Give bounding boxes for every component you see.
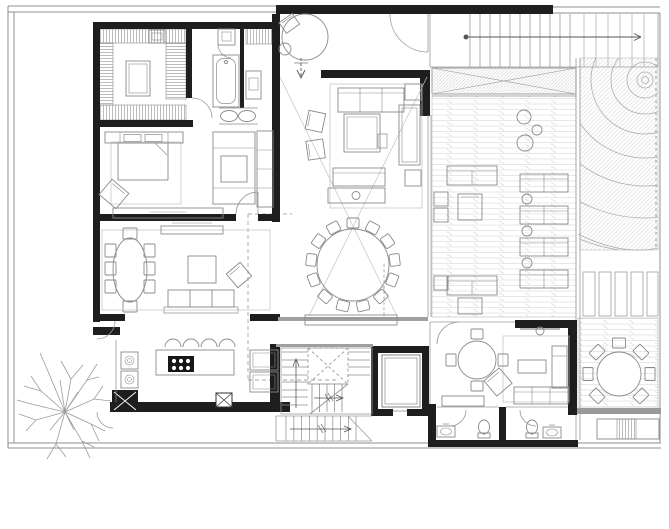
headboard [105,132,183,143]
armchair [305,110,326,132]
terrace-step-edge [576,408,661,414]
powder-room-2-door [520,410,536,426]
service-door [97,412,113,428]
flight-treads-right [348,352,370,375]
chaise-sofa [213,132,255,204]
kitchen [116,339,278,402]
coffee-table [344,114,380,152]
rug [111,142,181,204]
entry-arrow [294,58,308,78]
outdoor-round-table [597,352,641,396]
paver [647,272,658,316]
exterior-stair-diagonal [348,416,372,441]
boundary-top [8,6,278,12]
toilet [479,420,490,434]
coffee-table [518,360,546,373]
bath-louver-screen [246,28,272,44]
entry-door [390,14,428,52]
paver [615,272,627,316]
coffee-table [188,256,216,283]
side-stool [378,134,387,148]
console [442,396,484,406]
double-height-void-cross [280,77,427,316]
elevator [382,355,420,411]
exterior-lower-stair [276,416,372,441]
master-bedroom [99,132,223,218]
wall-oven [121,371,138,388]
chaise [552,346,567,388]
pillow [145,135,162,142]
tv-mount [536,327,544,335]
bar-stools [165,339,235,347]
closet-band-left [99,43,113,105]
study-lounge [213,131,273,207]
sink [543,427,561,438]
round-table [458,341,496,379]
dining-chairs [306,218,401,312]
paver [583,272,595,316]
main-staircase [281,348,372,414]
lamp [352,192,360,200]
ottoman [221,156,247,182]
closet-band-top [99,29,186,43]
shower-door [218,45,231,58]
sink-basin [221,111,238,122]
setback-lines [248,214,336,380]
planter-fill [617,419,636,439]
closet-band-bottom [99,105,186,120]
deck-floor [432,96,576,317]
ramp-band [432,68,576,94]
family-room [442,327,569,406]
stair-treads [470,14,570,67]
double-height-living-room [305,84,422,208]
armchair [484,368,512,396]
sofa [168,290,234,307]
closet-band-right [166,43,186,99]
stair-arrows [293,359,343,408]
vanity [246,71,261,99]
side-table [405,170,421,186]
paver [631,272,643,316]
boundary-left [8,6,14,448]
sink [437,426,455,437]
rug [102,230,270,310]
elevator-car [382,355,420,407]
dining-hall [305,218,400,325]
accent-chair [279,13,300,33]
stair-direction-arrow [464,34,641,41]
stepping-pavers [583,272,658,316]
floor-plan [0,0,669,529]
bench-sofa [333,168,385,186]
console [328,188,385,203]
closet-bath-door [192,98,212,118]
exterior-stair-arrow [290,424,351,433]
family-room-door [437,322,459,344]
oval-table-chairs [105,228,155,312]
sofa [514,387,568,404]
toilet [527,420,538,434]
round-dining-table [317,229,389,301]
powder-room-1-door [450,410,466,426]
void-edges [276,317,428,347]
paver [599,272,611,316]
closet-island [126,61,150,96]
pillow [124,135,141,142]
oval-table [113,238,147,302]
kitchen-island [156,350,234,375]
shower [218,29,235,45]
wall-oven [121,352,138,369]
living-deck-window [428,115,431,317]
flight-treads-left [282,352,308,405]
side-table [405,84,421,100]
sink-basin [239,111,256,122]
landing-cross [308,348,348,384]
service-column [216,393,232,407]
sofa [338,88,404,112]
family-dining-room [102,223,270,313]
wood-deck-lounge [432,96,576,317]
entry-vestibule [279,13,328,60]
